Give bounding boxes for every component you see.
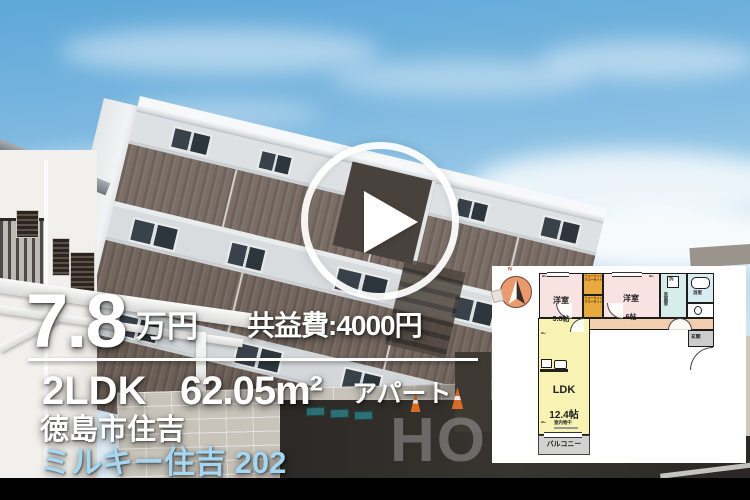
teal-panel <box>354 411 373 421</box>
address: 徳島市住吉 <box>40 416 185 445</box>
washer-label: 洗 <box>669 277 674 282</box>
neighbor-window <box>16 210 39 238</box>
stove-icon <box>541 359 552 368</box>
compass-icon <box>500 276 532 308</box>
washroom-label: 洗面室 <box>662 292 667 306</box>
cloud <box>60 28 380 74</box>
neighbor-window <box>52 238 70 276</box>
far-roof <box>689 244 750 268</box>
building-type: アパート <box>352 382 452 407</box>
window-mark <box>612 272 642 277</box>
window-mark <box>547 272 569 277</box>
cloud <box>540 40 750 80</box>
closet1-label: ウォークインクローゼット <box>584 275 603 282</box>
floor-area: 62.05m² <box>180 371 322 411</box>
floorplan-thumbnail[interactable]: N 洋室 <box>492 266 746 463</box>
ac-marker: AC <box>541 421 546 425</box>
price-unit: 万円 <box>136 311 198 342</box>
bedroom1-label: 洋室 5.8帖 <box>541 288 581 324</box>
video-play-button[interactable] <box>301 142 459 300</box>
bathroom-label: 浴室 <box>693 291 702 296</box>
entrance-door-arc <box>690 347 713 370</box>
ac-marker: AC <box>542 275 547 279</box>
bedroom2-label: 洋室 6帖 <box>607 286 655 322</box>
closet2-label: ウォークインクローゼット <box>584 297 603 304</box>
play-icon <box>364 191 418 253</box>
property-name: ミルキー住吉 202 <box>40 447 286 478</box>
toilet-icon <box>694 306 702 315</box>
sink-icon <box>554 360 567 369</box>
bottom-black-bar <box>0 478 750 500</box>
ac-marker: AC <box>649 275 654 279</box>
photo-watermark: HO <box>390 410 487 472</box>
window-mark <box>544 432 582 438</box>
listing-card: HO N <box>0 0 750 500</box>
micro-note-line <box>554 427 578 429</box>
layout-type: 2LDK <box>42 371 146 411</box>
compass-n-label: N <box>508 267 512 273</box>
balcony-label: バルコニー <box>542 441 586 449</box>
indoor-drying-label: 室内物干 <box>554 421 572 426</box>
bathtub-icon <box>691 277 710 289</box>
price-value: 7.8 <box>26 284 126 360</box>
entrance-label: 玄関 <box>691 335 701 340</box>
ldk-label: LDK 12.4帖 <box>542 372 586 421</box>
ac-marker: AC <box>541 332 546 336</box>
common-fee: 共益費:4000円 <box>247 312 422 340</box>
divider-line <box>28 358 478 361</box>
teal-panel <box>330 409 349 419</box>
